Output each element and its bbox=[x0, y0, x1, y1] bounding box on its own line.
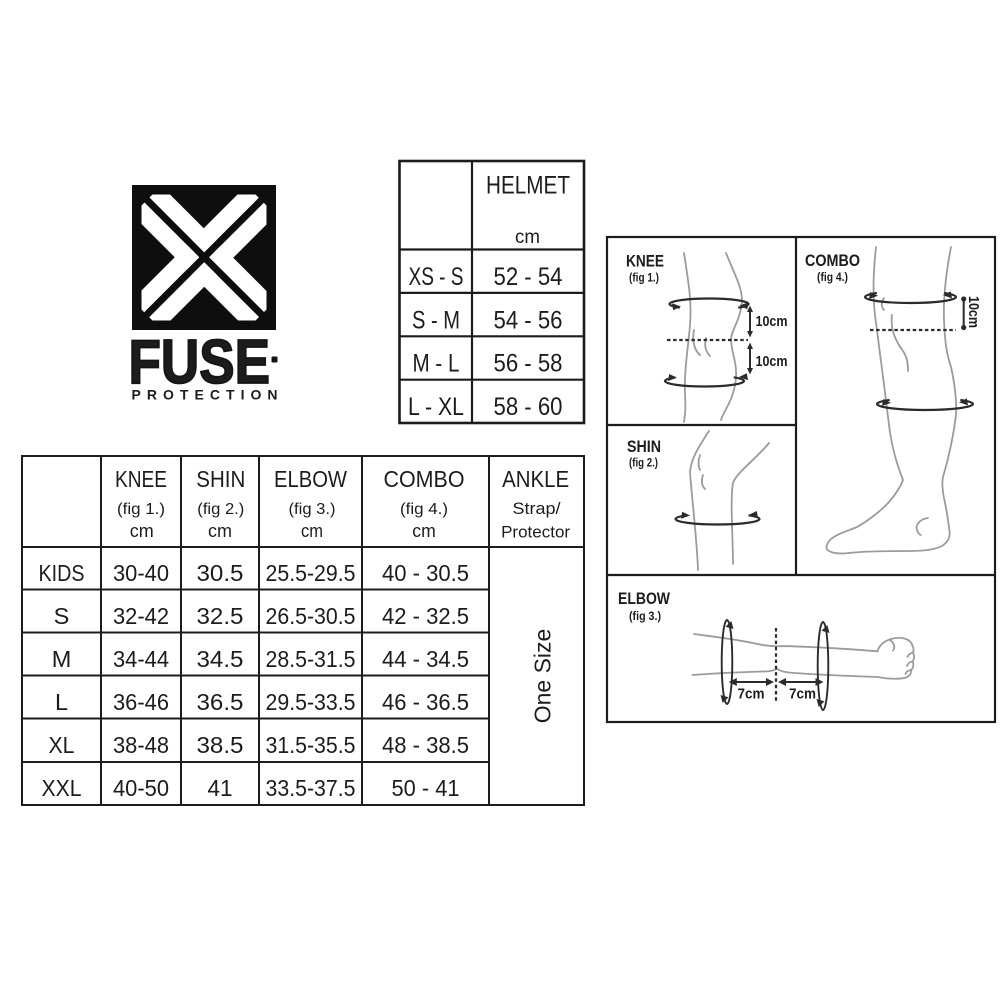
svg-text:Protector: Protector bbox=[501, 523, 570, 542]
svg-text:ELBOW: ELBOW bbox=[618, 589, 671, 608]
svg-text:42 - 32.5: 42 - 32.5 bbox=[382, 603, 469, 629]
svg-text:40-50: 40-50 bbox=[113, 775, 169, 801]
svg-text:46 - 36.5: 46 - 36.5 bbox=[382, 689, 469, 715]
svg-text:COMBO: COMBO bbox=[384, 466, 465, 492]
svg-text:50 - 41: 50 - 41 bbox=[392, 775, 460, 801]
svg-text:KNEE: KNEE bbox=[115, 466, 167, 492]
svg-text:KNEE: KNEE bbox=[626, 252, 664, 271]
svg-text:S: S bbox=[54, 603, 70, 629]
svg-text:(fig 3.): (fig 3.) bbox=[289, 501, 336, 518]
svg-text:(fig 1.): (fig 1.) bbox=[629, 271, 659, 285]
svg-text:7cm: 7cm bbox=[789, 686, 816, 703]
svg-text:One Size: One Size bbox=[530, 629, 556, 724]
svg-text:31.5-35.5: 31.5-35.5 bbox=[266, 732, 356, 758]
svg-text:XL: XL bbox=[49, 732, 75, 758]
svg-text:44 - 34.5: 44 - 34.5 bbox=[382, 646, 469, 672]
svg-text:38-48: 38-48 bbox=[113, 732, 169, 758]
svg-text:cm: cm bbox=[515, 227, 540, 248]
svg-text:32.5: 32.5 bbox=[197, 603, 244, 629]
svg-text:(fig 2.): (fig 2.) bbox=[629, 456, 658, 470]
svg-text:41: 41 bbox=[208, 775, 233, 801]
svg-text:(fig 2.): (fig 2.) bbox=[197, 501, 244, 518]
svg-text:25.5-29.5: 25.5-29.5 bbox=[266, 560, 356, 586]
svg-text:cm: cm bbox=[412, 521, 436, 541]
svg-text:M: M bbox=[52, 646, 72, 672]
svg-text:29.5-33.5: 29.5-33.5 bbox=[266, 689, 356, 715]
svg-text:33.5-37.5: 33.5-37.5 bbox=[266, 775, 356, 801]
svg-text:S - M: S - M bbox=[412, 307, 460, 335]
svg-text:36-46: 36-46 bbox=[113, 689, 169, 715]
svg-text:SHIN: SHIN bbox=[627, 437, 661, 456]
svg-text:7cm: 7cm bbox=[738, 686, 765, 703]
svg-text:34-44: 34-44 bbox=[113, 646, 169, 672]
svg-text:(fig 1.): (fig 1.) bbox=[117, 501, 165, 518]
svg-text:28.5-31.5: 28.5-31.5 bbox=[266, 646, 356, 672]
svg-text:cm: cm bbox=[130, 521, 154, 541]
svg-text:(fig 3.): (fig 3.) bbox=[629, 609, 661, 623]
svg-text:ELBOW: ELBOW bbox=[274, 466, 347, 492]
svg-text:SHIN: SHIN bbox=[196, 466, 245, 492]
svg-text:COMBO: COMBO bbox=[805, 251, 860, 270]
svg-text:L: L bbox=[55, 689, 68, 715]
svg-text:32-42: 32-42 bbox=[113, 603, 169, 629]
svg-text:XS - S: XS - S bbox=[409, 263, 464, 291]
svg-text:L - XL: L - XL bbox=[408, 393, 464, 421]
svg-text:26.5-30.5: 26.5-30.5 bbox=[266, 603, 356, 629]
svg-text:54 - 56: 54 - 56 bbox=[494, 307, 563, 335]
svg-text:58 - 60: 58 - 60 bbox=[494, 393, 563, 421]
svg-text:M - L: M - L bbox=[413, 350, 460, 378]
svg-text:10cm: 10cm bbox=[756, 314, 788, 330]
svg-text:10cm: 10cm bbox=[965, 296, 981, 328]
svg-text:KIDS: KIDS bbox=[39, 560, 85, 586]
svg-text:52 - 54: 52 - 54 bbox=[494, 263, 563, 291]
svg-text:HELMET: HELMET bbox=[486, 172, 570, 200]
svg-text:ANKLE: ANKLE bbox=[502, 466, 569, 492]
svg-text:40 - 30.5: 40 - 30.5 bbox=[382, 560, 469, 586]
svg-text:Strap/: Strap/ bbox=[513, 499, 561, 518]
svg-text:56 - 58: 56 - 58 bbox=[494, 350, 563, 378]
svg-text:38.5: 38.5 bbox=[197, 732, 244, 758]
svg-text:34.5: 34.5 bbox=[197, 646, 244, 672]
svg-text:(fig 4.): (fig 4.) bbox=[400, 501, 448, 518]
svg-text:XXL: XXL bbox=[42, 775, 82, 801]
svg-text:30-40: 30-40 bbox=[113, 560, 169, 586]
svg-text:30.5: 30.5 bbox=[197, 560, 244, 586]
svg-text:(fig 4.): (fig 4.) bbox=[817, 270, 848, 284]
svg-text:cm: cm bbox=[301, 521, 323, 541]
svg-text:cm: cm bbox=[208, 521, 232, 541]
svg-text:10cm: 10cm bbox=[756, 354, 788, 370]
svg-text:36.5: 36.5 bbox=[197, 689, 244, 715]
svg-text:48 - 38.5: 48 - 38.5 bbox=[382, 732, 469, 758]
